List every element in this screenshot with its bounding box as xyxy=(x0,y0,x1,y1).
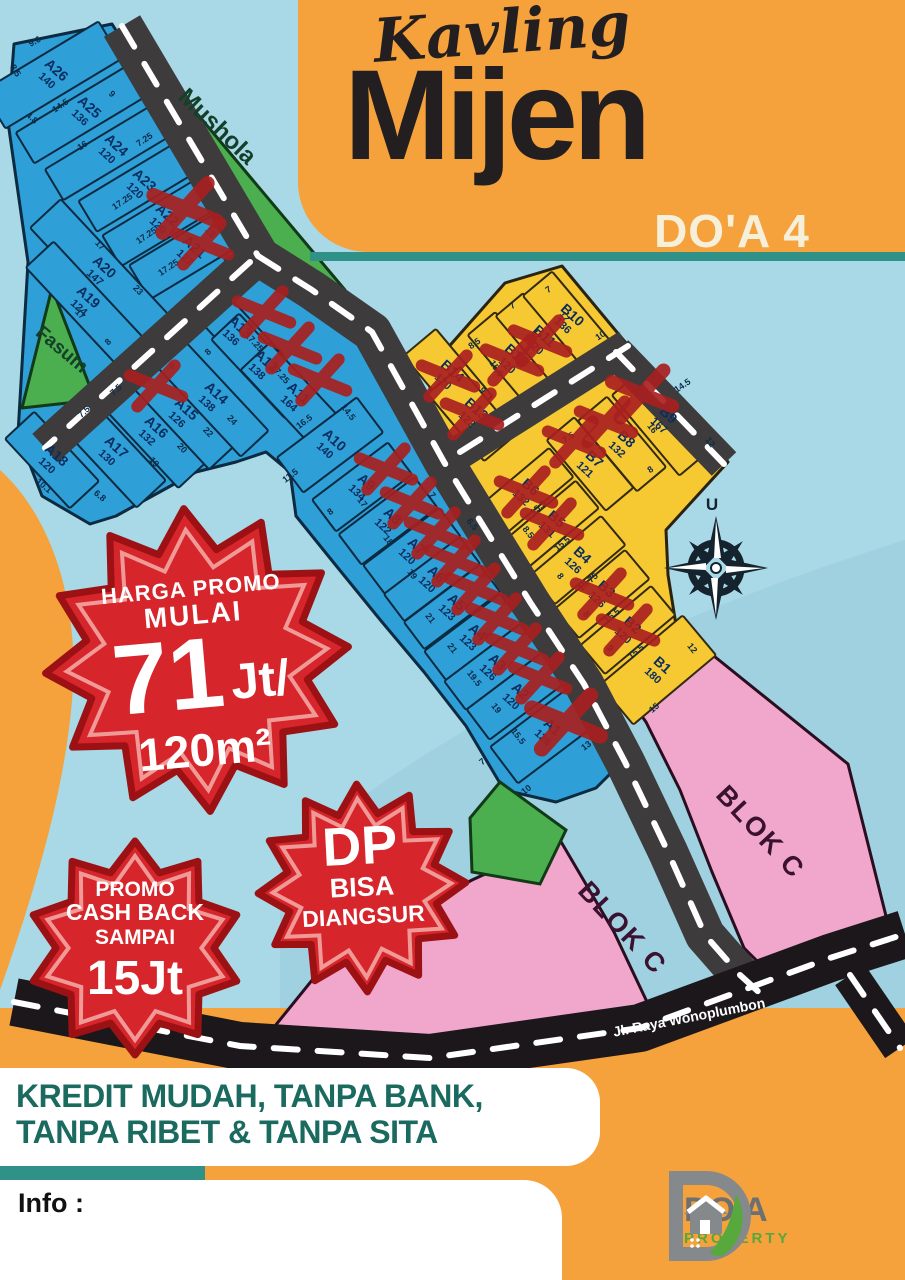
teal-divider xyxy=(0,1166,205,1180)
promo-price: 71 xyxy=(108,616,229,737)
title-main: Mijen xyxy=(344,52,646,180)
cashback-value: 15Jt xyxy=(87,952,183,1005)
dp-line2: BISA xyxy=(329,870,395,903)
info-label: Info : xyxy=(18,1188,84,1218)
credit-banner-line1: KREDIT MUDAH, TANPA BANK, xyxy=(16,1078,600,1114)
cashback-line2: CASH BACK xyxy=(66,899,204,925)
cashback-line1: PROMO xyxy=(95,878,174,901)
promo-price-unit: Jt/ xyxy=(229,649,292,710)
logo-house-icon xyxy=(662,1168,754,1264)
north-label: U xyxy=(706,495,718,514)
title-sub: DO'A 4 xyxy=(588,204,876,258)
dp-line1: DP xyxy=(321,814,399,878)
cashback-line3: SAMPAI xyxy=(95,926,175,949)
flyer: A26140A25136A24120A23120A22120A21127A201… xyxy=(0,0,905,1280)
company-logo: DO'A PROPERTY xyxy=(662,1168,900,1272)
credit-banner: KREDIT MUDAH, TANPA BANK, TANPA RIBET & … xyxy=(0,1068,600,1166)
info-panel: Info : xyxy=(0,1180,562,1280)
credit-banner-line2: TANPA RIBET & TANPA SITA xyxy=(16,1114,600,1150)
